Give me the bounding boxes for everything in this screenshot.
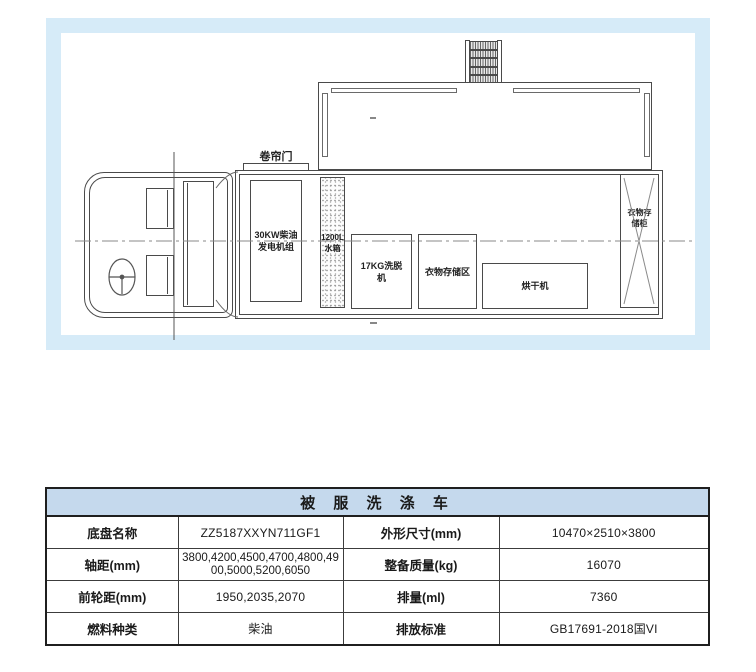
generator-label-line1: 30KW柴油 xyxy=(254,229,297,241)
row-value: 3800,4200,4500,4700,4800,4900,5000,5200,… xyxy=(178,549,343,581)
row-value: 7360 xyxy=(499,581,709,613)
roll-door-label: 卷帘门 xyxy=(238,148,314,164)
table-row: 轴距(mm) 3800,4200,4500,4700,4800,4900,500… xyxy=(46,549,709,581)
row-label: 轴距(mm) xyxy=(46,549,178,581)
roof-rail-right xyxy=(644,93,650,157)
washer-box: 17KG洗脱 机 xyxy=(351,234,412,309)
table-row: 底盘名称 ZZ5187XXYN711GF1 外形尺寸(mm) 10470×251… xyxy=(46,516,709,549)
driver-seat xyxy=(146,255,174,296)
row-label: 前轮距(mm) xyxy=(46,581,178,613)
table-title: 被 服 洗 涤 车 xyxy=(46,488,709,516)
washer-label-line1: 17KG洗脱 xyxy=(361,260,403,272)
passenger-seat xyxy=(146,188,174,229)
washer-label-line2: 机 xyxy=(361,272,403,284)
row-value: 10470×2510×3800 xyxy=(499,516,709,549)
generator-box: 30KW柴油 发电机组 xyxy=(250,180,302,302)
roll-door xyxy=(243,163,309,171)
table-row: 前轮距(mm) 1950,2035,2070 排量(ml) 7360 xyxy=(46,581,709,613)
cab-rear-panel-line xyxy=(187,183,188,305)
row-value: GB17691-2018国VI xyxy=(499,613,709,646)
row-value: 1950,2035,2070 xyxy=(178,581,343,613)
storage-area-label: 衣物存储区 xyxy=(425,266,470,278)
roof-rail-left xyxy=(322,93,328,157)
row-label: 外形尺寸(mm) xyxy=(343,516,499,549)
spec-sheet-page: 卷帘门 30KW柴油 发电机组 1200L 水箱 17KG洗脱 机 衣物存储区 … xyxy=(0,0,756,672)
cabinet-label-line1: 衣物存 xyxy=(628,207,652,218)
ladder-rung xyxy=(469,67,498,76)
clothes-storage-area-box: 衣物存储区 xyxy=(418,234,477,309)
clothes-cabinet-box: 衣物存 储柜 xyxy=(620,174,659,308)
seat-back-line xyxy=(167,190,168,227)
water-tank-label-line2: 水箱 xyxy=(321,243,344,254)
table-row: 燃料种类 柴油 排放标准 GB17691-2018国VI xyxy=(46,613,709,646)
row-label: 排放标准 xyxy=(343,613,499,646)
roof-rail-top-right xyxy=(513,88,640,93)
spec-table-container: 被 服 洗 涤 车 底盘名称 ZZ5187XXYN711GF1 外形尺寸(mm)… xyxy=(45,487,708,646)
cab-rear-panel xyxy=(183,181,214,307)
row-value: ZZ5187XXYN711GF1 xyxy=(178,516,343,549)
ladder-rung xyxy=(469,58,498,67)
row-label: 燃料种类 xyxy=(46,613,178,646)
roof-panel xyxy=(318,82,652,170)
row-label: 底盘名称 xyxy=(46,516,178,549)
row-label: 整备质量(kg) xyxy=(343,549,499,581)
water-tank-box: 1200L 水箱 xyxy=(320,177,345,308)
dryer-label: 烘干机 xyxy=(521,280,548,292)
row-value: 柴油 xyxy=(178,613,343,646)
water-tank-label-line1: 1200L xyxy=(321,232,344,243)
spec-table: 被 服 洗 涤 车 底盘名称 ZZ5187XXYN711GF1 外形尺寸(mm)… xyxy=(45,487,710,646)
ladder-rung xyxy=(469,50,498,59)
generator-label-line2: 发电机组 xyxy=(254,241,297,253)
seat-back-line xyxy=(167,257,168,294)
row-value: 16070 xyxy=(499,549,709,581)
roof-rail-top-left xyxy=(331,88,457,93)
roof-ladder-rungs xyxy=(469,41,498,84)
ladder-rung xyxy=(469,41,498,50)
cabinet-label-line2: 储柜 xyxy=(628,218,652,229)
dryer-box: 烘干机 xyxy=(482,263,588,309)
row-label: 排量(ml) xyxy=(343,581,499,613)
